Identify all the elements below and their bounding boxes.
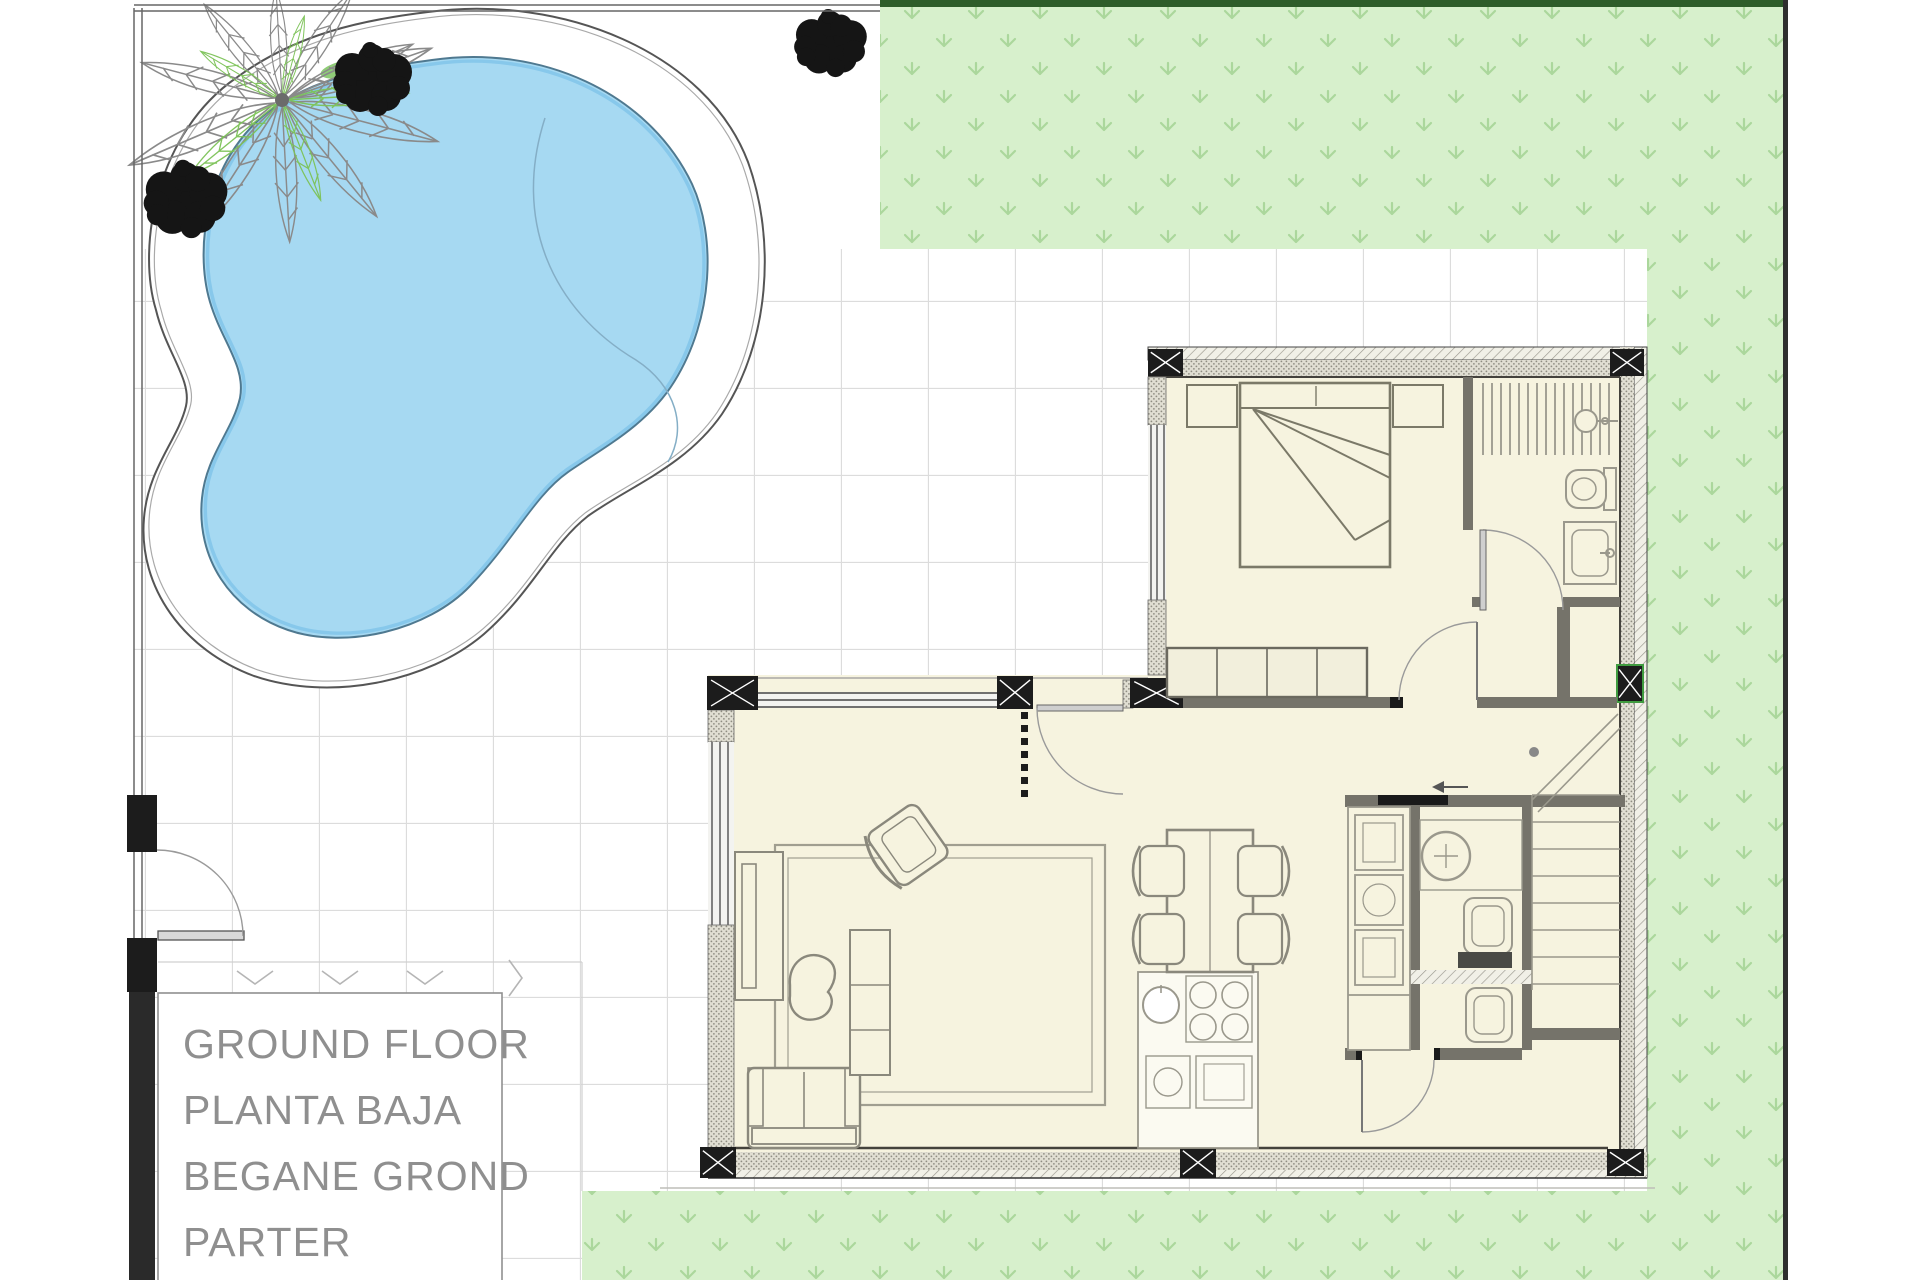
- entrance-door-leaf: [1037, 705, 1123, 711]
- sofa: [748, 1068, 860, 1148]
- lawn-top: [880, 0, 1783, 249]
- sideboard: [850, 930, 890, 1075]
- bed: [1240, 383, 1390, 567]
- stair-walkline-start: [1529, 747, 1539, 757]
- washbasin-icon: [1564, 522, 1616, 584]
- floor-label-es: PLANTA BAJA: [183, 1087, 462, 1133]
- floor-label-ro: PARTER: [183, 1219, 352, 1265]
- title-block: GROUND FLOOR PLANTA BAJA BEGANE GROND PA…: [158, 993, 530, 1280]
- lawn-right: [1647, 249, 1783, 1280]
- utility-cabinets: [1348, 807, 1410, 1050]
- dining-chair: [1133, 914, 1184, 964]
- shower-threshold: [1458, 952, 1512, 968]
- bath-partition: [1410, 970, 1532, 984]
- cooktop-icon: [1186, 976, 1252, 1042]
- boundary-line-right: [1783, 0, 1788, 1280]
- toilet-icon: [1566, 468, 1616, 510]
- shower-head-icon: [1575, 410, 1597, 432]
- dining-chair: [1133, 846, 1184, 896]
- nightstand: [1393, 385, 1443, 427]
- kitchen-island: [1138, 972, 1258, 1148]
- floor-label-nl: BEGANE GROND: [183, 1153, 530, 1199]
- wc-icon: [1466, 988, 1512, 1042]
- dining-chair: [1238, 846, 1289, 896]
- floor-plan-page: GROUND FLOOR PLANTA BAJA BEGANE GROND PA…: [0, 0, 1920, 1280]
- toilet-icon: [1464, 898, 1512, 954]
- nightstand: [1187, 385, 1237, 427]
- site-plan: GROUND FLOOR PLANTA BAJA BEGANE GROND PA…: [0, 0, 1920, 1280]
- hedge-top-strip: [880, 0, 1783, 7]
- coffee-table: [790, 955, 835, 1020]
- lawn-bottom: [582, 1191, 1647, 1280]
- floor-label-en: GROUND FLOOR: [183, 1021, 530, 1067]
- dining-chair: [1238, 914, 1289, 964]
- tv-unit: [735, 852, 783, 1000]
